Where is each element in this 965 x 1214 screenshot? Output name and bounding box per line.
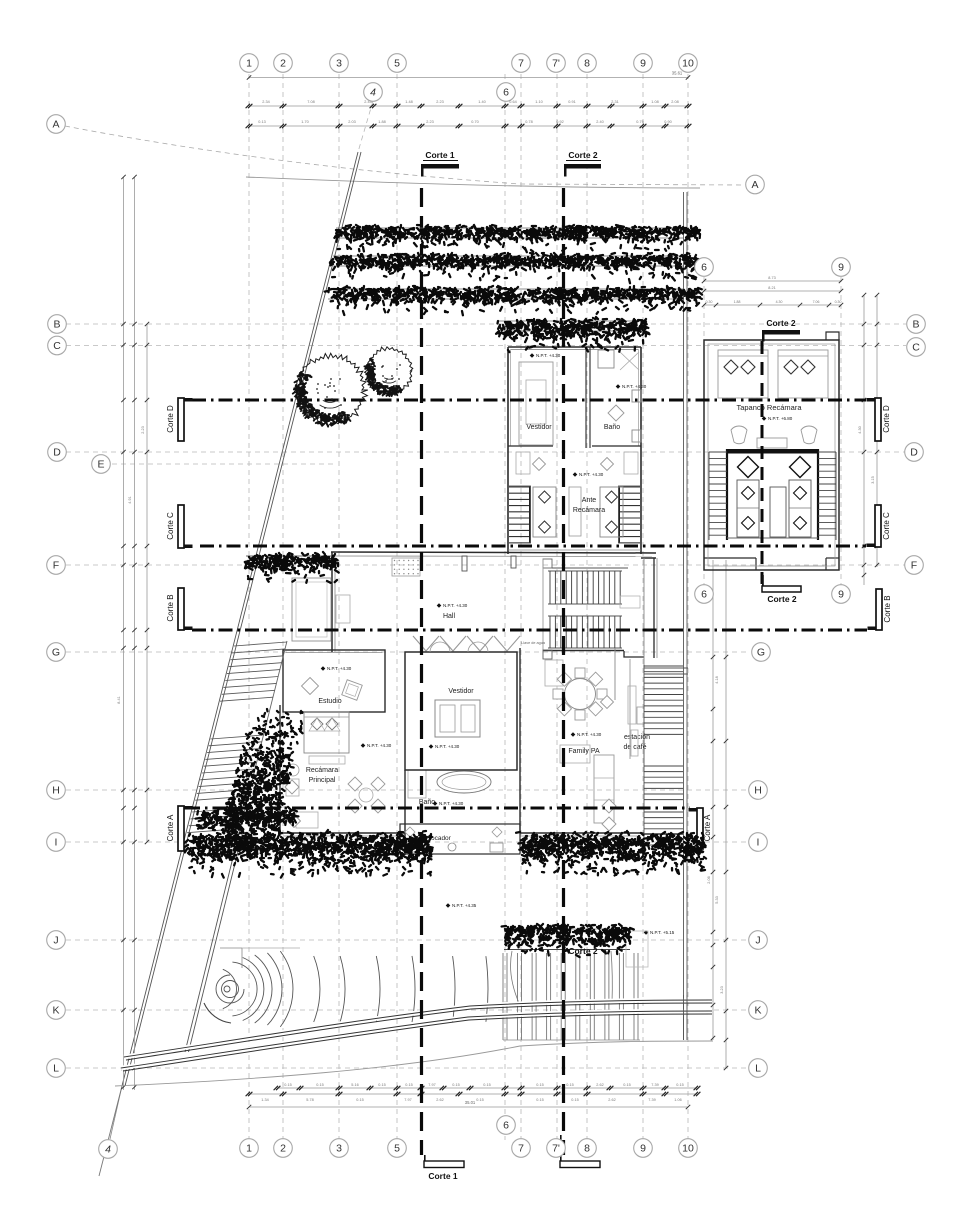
svg-text:2.40: 2.40	[596, 120, 603, 124]
svg-text:0.15: 0.15	[378, 1083, 385, 1087]
svg-text:4.91: 4.91	[128, 496, 132, 503]
svg-text:8.21: 8.21	[768, 286, 775, 290]
svg-text:1.70: 1.70	[301, 120, 308, 124]
svg-text:F: F	[53, 560, 59, 572]
svg-text:4.30: 4.30	[858, 426, 862, 433]
svg-text:3.23: 3.23	[720, 986, 724, 993]
svg-text:0.70: 0.70	[471, 120, 478, 124]
svg-text:6: 6	[701, 262, 707, 274]
svg-text:4: 4	[370, 87, 376, 99]
svg-text:7.39: 7.39	[651, 1083, 658, 1087]
svg-text:1.34: 1.34	[261, 1098, 268, 1102]
svg-text:L: L	[755, 1063, 761, 1075]
svg-text:G: G	[52, 647, 60, 659]
svg-text:1.10: 1.10	[535, 100, 542, 104]
svg-text:0.15: 0.15	[316, 1083, 323, 1087]
svg-text:N.P.T. +4.35: N.P.T. +4.35	[452, 903, 477, 908]
svg-text:0.78: 0.78	[525, 120, 532, 124]
svg-text:Vestidor: Vestidor	[448, 688, 474, 695]
svg-text:Corte D: Corte D	[166, 405, 175, 433]
svg-text:0.15: 0.15	[623, 1083, 630, 1087]
svg-text:Hall: Hall	[443, 613, 456, 620]
svg-text:J: J	[755, 935, 760, 947]
svg-text:5.16: 5.16	[351, 1083, 358, 1087]
svg-text:1: 1	[246, 1143, 252, 1155]
svg-text:0.15: 0.15	[476, 1098, 483, 1102]
svg-text:9: 9	[640, 58, 646, 70]
svg-text:7.06: 7.06	[813, 300, 820, 304]
svg-text:N.P.T. +4.30: N.P.T. +4.30	[536, 353, 561, 358]
svg-text:N.P.T. +4.30: N.P.T. +4.30	[579, 472, 604, 477]
svg-text:9: 9	[838, 589, 844, 601]
svg-text:1.48: 1.48	[405, 100, 412, 104]
svg-text:2.31: 2.31	[611, 100, 618, 104]
svg-text:5: 5	[394, 1143, 400, 1155]
svg-text:D: D	[910, 447, 918, 459]
svg-text:L: L	[53, 1063, 59, 1075]
svg-text:Corte A: Corte A	[166, 814, 175, 841]
svg-text:10: 10	[682, 1143, 694, 1155]
svg-text:1.88: 1.88	[734, 300, 741, 304]
svg-text:N.P.T. +4.30: N.P.T. +4.30	[439, 801, 464, 806]
svg-text:1.88: 1.88	[378, 120, 385, 124]
svg-text:9: 9	[838, 262, 844, 274]
svg-text:8: 8	[584, 58, 590, 70]
svg-text:N.P.T. +6.80: N.P.T. +6.80	[768, 416, 793, 421]
svg-text:B: B	[912, 319, 919, 331]
svg-text:0.15: 0.15	[405, 1083, 412, 1087]
svg-text:C: C	[912, 342, 920, 354]
svg-text:3: 3	[336, 1143, 342, 1155]
svg-text:0.91: 0.91	[568, 100, 575, 104]
svg-text:N.P.T. +4.30: N.P.T. +4.30	[577, 732, 602, 737]
svg-text:0.30: 0.30	[706, 300, 713, 304]
svg-text:7.08: 7.08	[307, 100, 314, 104]
svg-text:N.P.T. +5.15: N.P.T. +5.15	[650, 930, 675, 935]
svg-text:5.33: 5.33	[715, 896, 719, 903]
svg-text:0.79: 0.79	[636, 120, 643, 124]
svg-text:D: D	[53, 447, 61, 459]
svg-text:1.06: 1.06	[674, 1098, 681, 1102]
svg-text:Corte 1: Corte 1	[425, 150, 455, 160]
svg-text:Estudio: Estudio	[318, 698, 341, 705]
svg-text:0.15: 0.15	[356, 1098, 363, 1102]
svg-text:Corte A: Corte A	[703, 814, 712, 841]
svg-text:N.P.T. +4.30: N.P.T. +4.30	[622, 384, 647, 389]
svg-text:C: C	[53, 340, 61, 352]
svg-text:H: H	[52, 785, 60, 797]
svg-text:6: 6	[503, 1120, 509, 1132]
svg-text:1.40: 1.40	[478, 100, 485, 104]
svg-text:35.61: 35.61	[672, 71, 683, 76]
svg-text:35.01: 35.01	[465, 1100, 476, 1105]
svg-text:0.15: 0.15	[284, 1083, 291, 1087]
svg-text:Principal: Principal	[309, 777, 336, 784]
svg-text:A: A	[751, 179, 758, 191]
svg-text:N.P.T. +4.30: N.P.T. +4.30	[435, 744, 460, 749]
svg-text:B: B	[53, 319, 60, 331]
svg-text:Recámara: Recámara	[573, 507, 605, 514]
svg-text:Corte C: Corte C	[166, 512, 175, 540]
svg-text:Vestidor: Vestidor	[526, 424, 552, 431]
svg-text:0.15: 0.15	[483, 1083, 490, 1087]
svg-text:Ante: Ante	[582, 497, 597, 504]
svg-text:Corte 2: Corte 2	[767, 594, 797, 604]
svg-text:Recámara: Recámara	[306, 767, 338, 774]
svg-text:2.23: 2.23	[436, 100, 443, 104]
svg-text:0.15: 0.15	[452, 1083, 459, 1087]
svg-text:2.62: 2.62	[596, 1083, 603, 1087]
svg-text:8.41: 8.41	[117, 696, 121, 703]
svg-text:6: 6	[701, 589, 707, 601]
svg-text:de café: de café	[624, 744, 647, 751]
svg-text:2: 2	[280, 58, 286, 70]
svg-text:4: 4	[105, 1144, 111, 1156]
svg-text:7.39: 7.39	[648, 1098, 655, 1102]
svg-text:Corte 1: Corte 1	[428, 1171, 458, 1181]
svg-text:J: J	[53, 935, 58, 947]
svg-text:7.97: 7.97	[404, 1098, 411, 1102]
svg-text:H: H	[754, 785, 762, 797]
svg-text:3: 3	[336, 58, 342, 70]
svg-text:2.62: 2.62	[436, 1098, 443, 1102]
svg-text:Corte 2: Corte 2	[568, 946, 598, 956]
svg-text:1: 1	[246, 58, 252, 70]
svg-text:2.03: 2.03	[348, 120, 355, 124]
svg-text:3.15: 3.15	[871, 476, 875, 483]
svg-text:5: 5	[394, 58, 400, 70]
svg-text:9: 9	[640, 1143, 646, 1155]
svg-text:Corte C: Corte C	[882, 512, 891, 540]
svg-text:7: 7	[518, 1143, 524, 1155]
svg-text:2.34: 2.34	[262, 100, 269, 104]
svg-text:K: K	[52, 1005, 59, 1017]
svg-text:I: I	[55, 837, 58, 849]
svg-text:2.62: 2.62	[608, 1098, 615, 1102]
svg-text:Corte 2: Corte 2	[568, 150, 598, 160]
svg-text:10: 10	[682, 58, 694, 70]
svg-text:2: 2	[280, 1143, 286, 1155]
svg-text:0.15: 0.15	[571, 1098, 578, 1102]
svg-text:G: G	[757, 647, 765, 659]
svg-text:N.P.T. +4.30: N.P.T. +4.30	[367, 743, 392, 748]
svg-text:Tapanco Recámara: Tapanco Recámara	[736, 403, 802, 412]
svg-text:N.P.T. +4.30: N.P.T. +4.30	[443, 603, 468, 608]
svg-text:Llave de agua: Llave de agua	[521, 641, 546, 645]
svg-text:K: K	[754, 1005, 761, 1017]
svg-text:0.15: 0.15	[676, 1083, 683, 1087]
svg-text:Corte D: Corte D	[882, 405, 891, 433]
svg-text:0.90: 0.90	[664, 120, 671, 124]
svg-text:7: 7	[518, 58, 524, 70]
svg-text:6: 6	[503, 87, 509, 99]
svg-text:0.15: 0.15	[536, 1083, 543, 1087]
svg-text:F: F	[911, 560, 917, 572]
svg-text:N.P.T. +4.30: N.P.T. +4.30	[327, 666, 352, 671]
svg-text:7.97: 7.97	[428, 1083, 435, 1087]
svg-text:Corte B: Corte B	[166, 594, 175, 621]
svg-text:Baño: Baño	[604, 424, 620, 431]
svg-text:2.08: 2.08	[671, 100, 678, 104]
svg-text:Family PA: Family PA	[568, 748, 600, 755]
svg-text:8: 8	[584, 1143, 590, 1155]
svg-text:2.23: 2.23	[141, 426, 145, 433]
svg-text:E: E	[97, 459, 104, 471]
svg-text:1.08: 1.08	[651, 100, 658, 104]
svg-text:0.30: 0.30	[835, 300, 842, 304]
svg-text:A: A	[52, 119, 59, 131]
svg-text:Corte 2: Corte 2	[766, 318, 796, 328]
svg-text:0.15: 0.15	[536, 1098, 543, 1102]
svg-text:0.15: 0.15	[566, 1083, 573, 1087]
svg-text:estación: estación	[624, 734, 650, 741]
svg-text:Corte B: Corte B	[883, 595, 892, 622]
svg-text:2.23: 2.23	[426, 120, 433, 124]
svg-text:4.30: 4.30	[776, 300, 783, 304]
svg-text:4.18: 4.18	[715, 676, 719, 683]
svg-text:5.78: 5.78	[306, 1098, 313, 1102]
svg-text:0.13: 0.13	[258, 120, 265, 124]
svg-text:0.92: 0.92	[556, 120, 563, 124]
svg-text:2.06: 2.06	[707, 876, 711, 883]
svg-text:7': 7'	[552, 1143, 560, 1155]
svg-text:I: I	[757, 837, 760, 849]
svg-text:8.73: 8.73	[768, 276, 775, 280]
svg-text:7': 7'	[552, 58, 560, 70]
